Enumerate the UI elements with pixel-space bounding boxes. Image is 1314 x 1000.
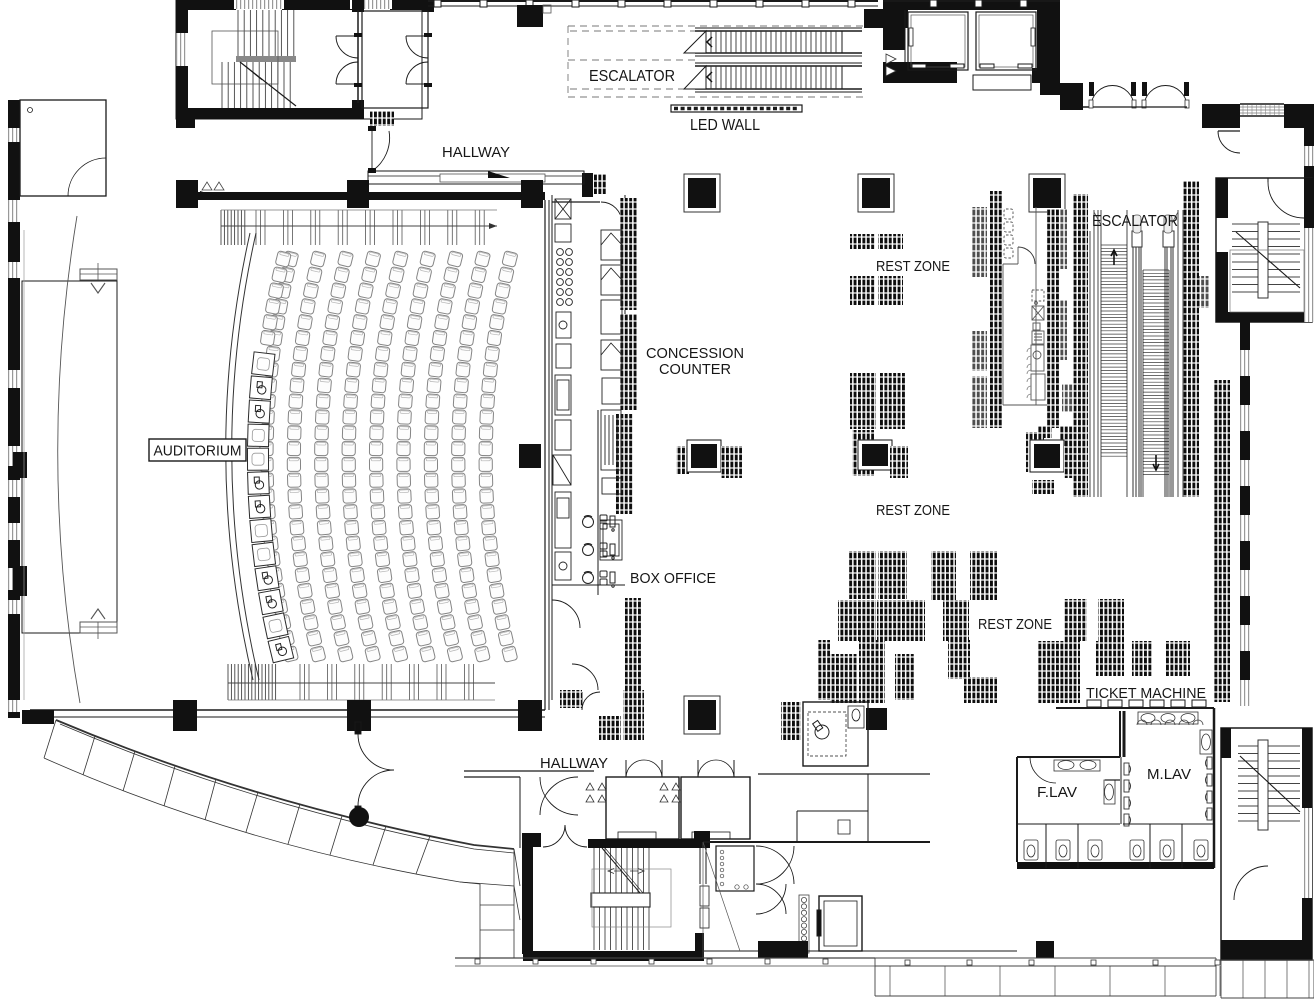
svg-text:AUDITORIUM: AUDITORIUM — [154, 443, 242, 460]
svg-text:LED WALL: LED WALL — [690, 117, 760, 134]
svg-text:F.LAV: F.LAV — [1037, 784, 1077, 801]
svg-text:TICKET MACHINE: TICKET MACHINE — [1086, 685, 1206, 702]
svg-text:HALLWAY: HALLWAY — [442, 144, 510, 161]
svg-text:M.LAV: M.LAV — [1147, 766, 1191, 783]
svg-text:CONCESSION: CONCESSION — [646, 345, 744, 362]
svg-text:ESCALATOR: ESCALATOR — [1092, 213, 1178, 230]
svg-text:ESCALATOR: ESCALATOR — [589, 68, 675, 85]
svg-text:REST ZONE: REST ZONE — [876, 258, 950, 275]
svg-text:COUNTER: COUNTER — [659, 361, 731, 378]
svg-text:BOX OFFICE: BOX OFFICE — [630, 570, 716, 587]
svg-text:REST ZONE: REST ZONE — [876, 502, 950, 519]
svg-text:HALLWAY: HALLWAY — [540, 755, 608, 772]
svg-text:REST ZONE: REST ZONE — [978, 616, 1052, 633]
